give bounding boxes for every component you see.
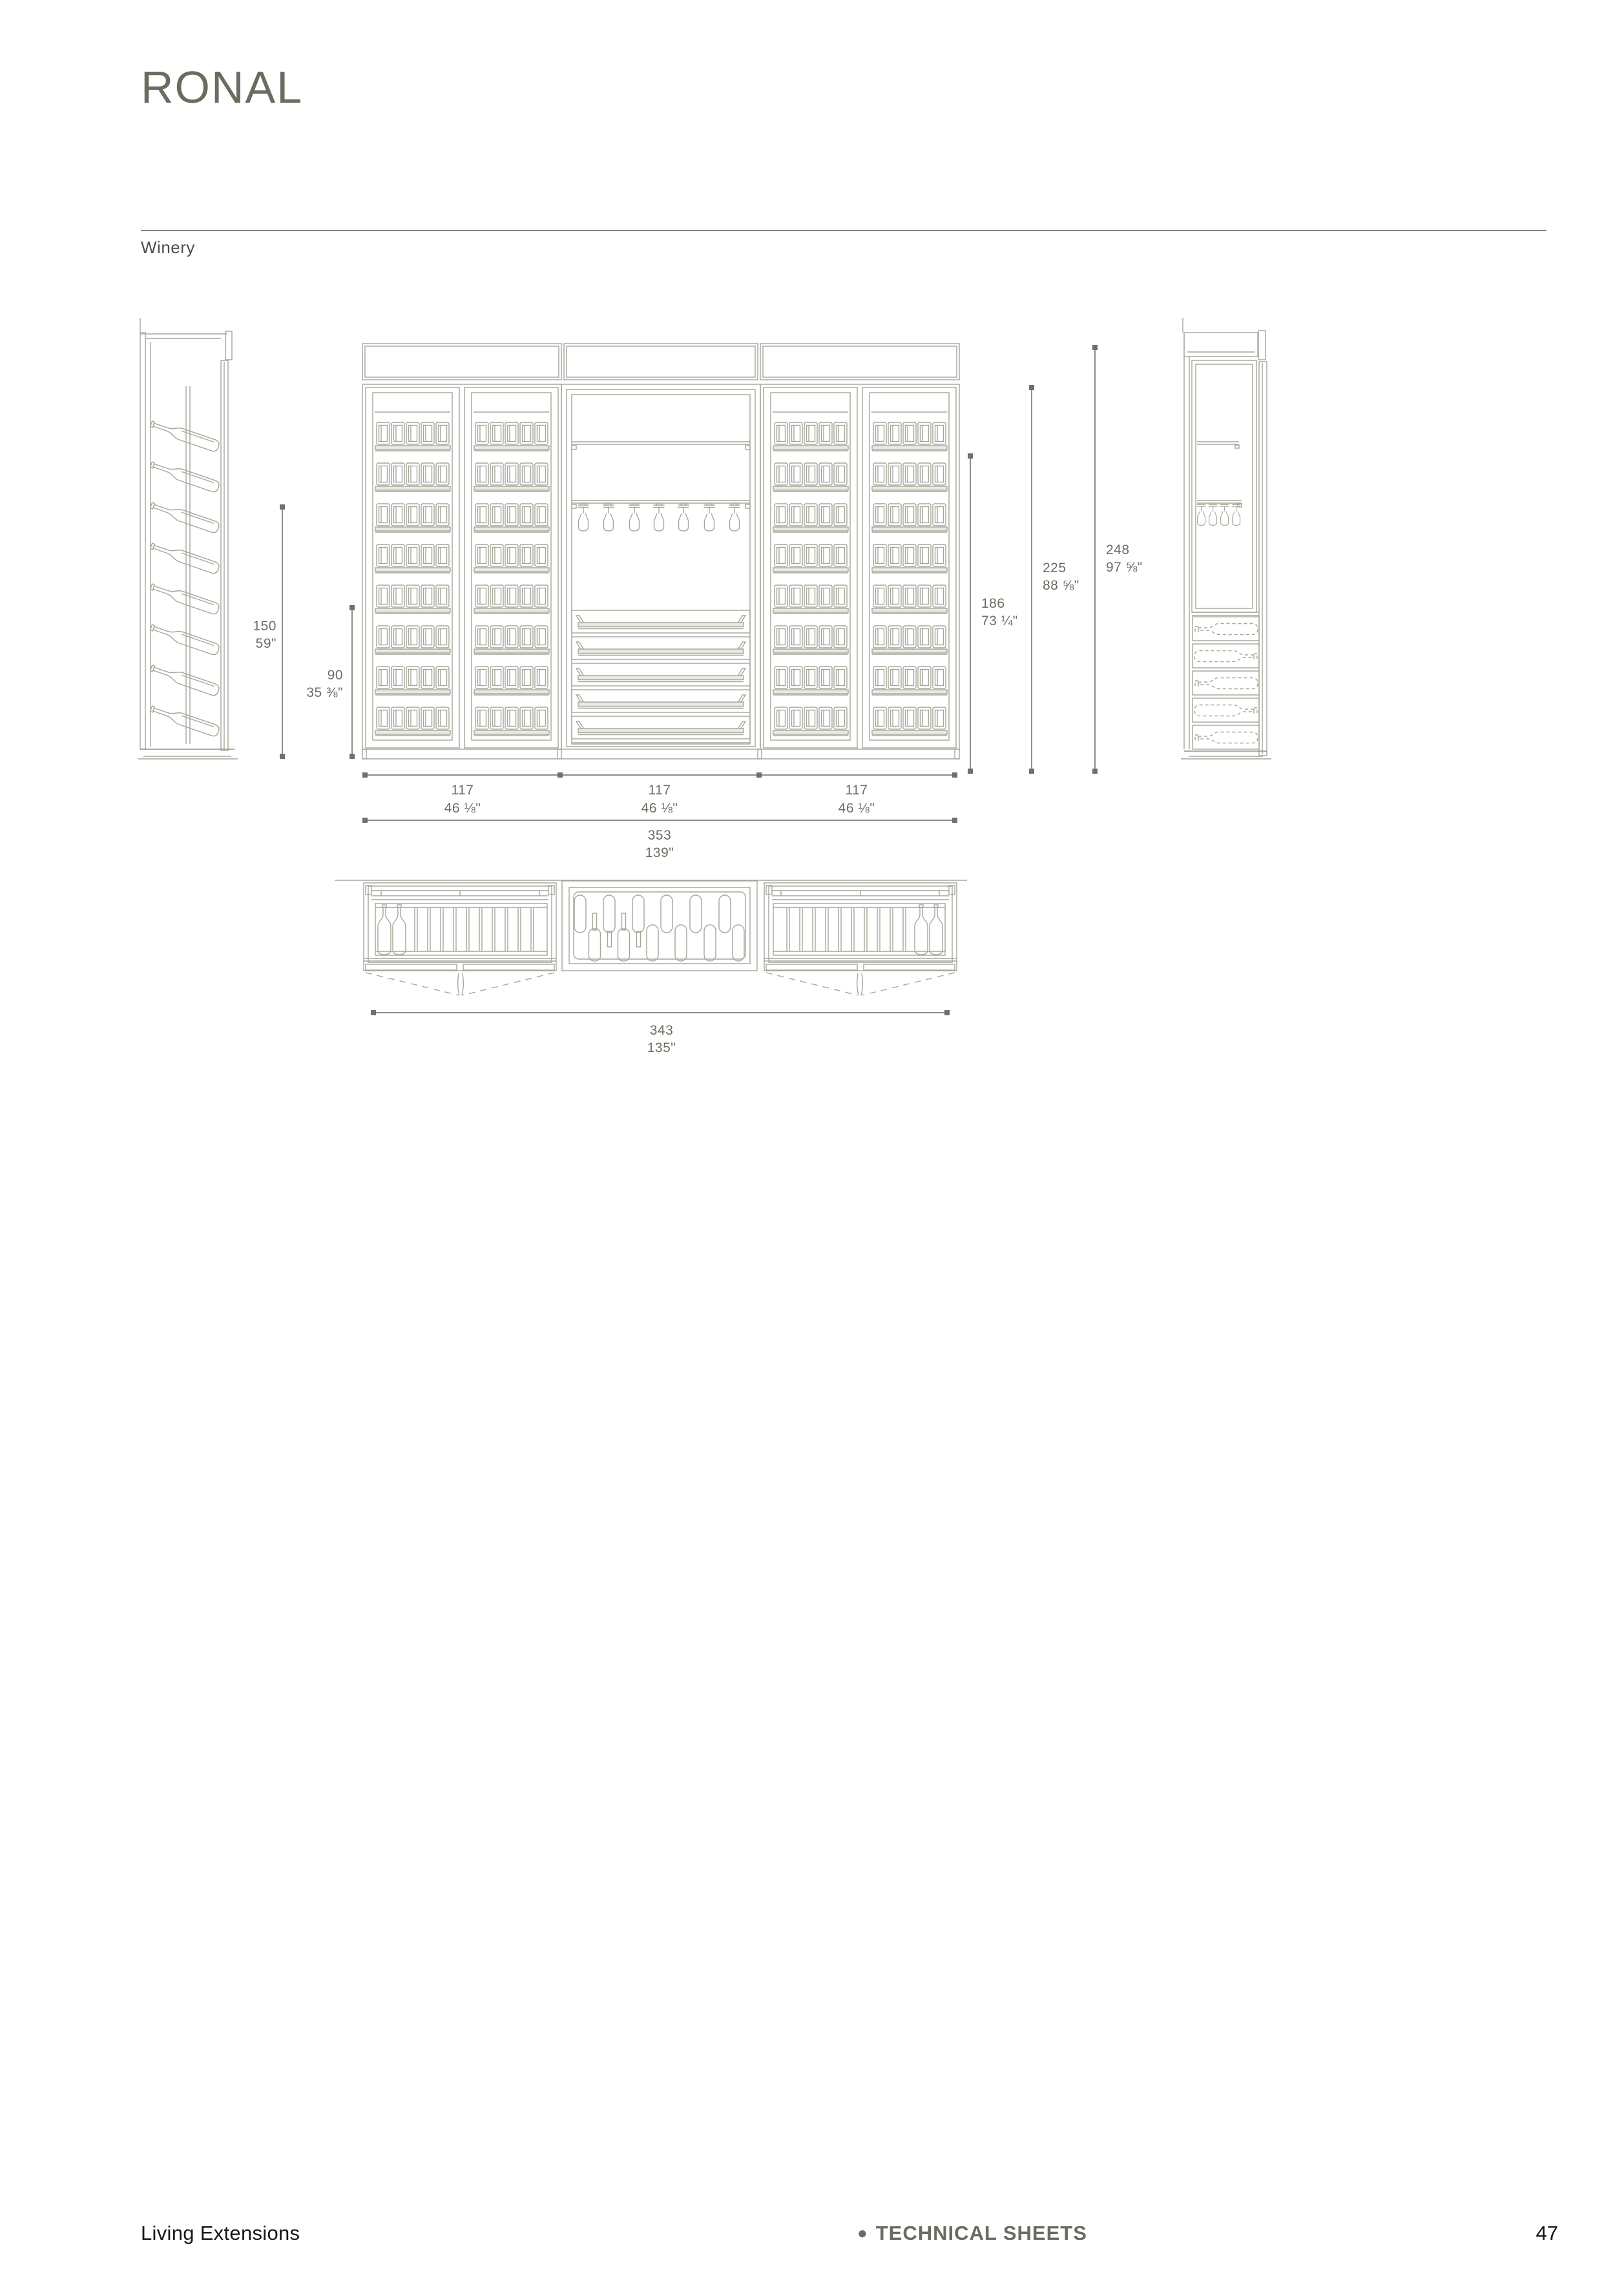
technical-sheets-bullet-icon: ● — [857, 2223, 868, 2242]
footer-collection-label: Living Extensions — [141, 2222, 300, 2245]
page-number: 47 — [1486, 2222, 1558, 2245]
glass-door-column — [764, 388, 857, 748]
bottle-drawer-stack — [1193, 617, 1259, 749]
footer-section-label: ●TECHNICAL SHEETS — [857, 2222, 1087, 2245]
dim-label-cm: 353 — [648, 828, 672, 843]
technical-drawing: 150 59" 90 35 ⅜" — [0, 0, 1615, 2296]
stemware-rail-side — [1197, 501, 1242, 525]
dim-total-width: 353 139" — [362, 818, 957, 860]
bottle-rack-side — [149, 419, 220, 738]
dim-label-in: 46 ⅛" — [839, 801, 875, 816]
plan-rack-section — [364, 883, 556, 995]
glass-door-column — [862, 388, 956, 748]
side-view-left — [138, 318, 238, 759]
tray-stack — [572, 610, 750, 739]
plan-view — [335, 880, 967, 995]
dim-label-cm: 150 — [253, 619, 276, 634]
dim-total-height: 248 97 ⅝" — [1092, 345, 1143, 774]
dim-label-cm: 186 — [981, 596, 1005, 611]
dim-cabinet-height: 225 88 ⅝" — [1029, 385, 1079, 774]
interior-shelf — [1197, 442, 1239, 448]
dim-module-widths: 117 46 ⅛" 117 46 ⅛" 117 46 ⅛" — [362, 772, 957, 816]
dim-label-in: 35 ⅜" — [306, 685, 343, 700]
dim-label-cm: 225 — [1043, 561, 1067, 575]
dim-label-in: 46 ⅛" — [641, 801, 678, 816]
dim-base-height: 90 35 ⅜" — [306, 605, 355, 759]
dim-label-cm: 117 — [649, 783, 671, 798]
dim-label-in: 97 ⅝" — [1106, 560, 1143, 575]
front-elevation — [362, 344, 959, 759]
dim-label-in: 139" — [645, 845, 674, 860]
dim-label-cm: 90 — [328, 668, 343, 683]
plan-drawer-section — [562, 881, 757, 971]
dim-door-height: 186 73 ¼" — [968, 453, 1018, 774]
dim-plan-width: 343 135" — [371, 1010, 950, 1055]
center-open-section — [567, 389, 755, 747]
dim-label-in: 59" — [256, 636, 276, 651]
dim-label-cm: 248 — [1106, 543, 1130, 557]
dim-label-in: 88 ⅝" — [1043, 578, 1079, 593]
dim-side-height: 150 59" — [253, 504, 285, 759]
dim-label-cm: 343 — [650, 1023, 674, 1038]
glass-door-column — [366, 388, 459, 748]
glass-door-column — [464, 388, 558, 748]
dim-label-cm: 117 — [452, 783, 474, 798]
footer-section-text: TECHNICAL SHEETS — [876, 2222, 1087, 2244]
dim-label-cm: 117 — [846, 783, 868, 798]
dim-label-in: 46 ⅛" — [444, 801, 481, 816]
side-view-right — [1181, 318, 1271, 759]
dim-label-in: 135" — [647, 1040, 676, 1055]
stemware-rail — [578, 503, 740, 531]
technical-sheet-page: RONAL Winery — [0, 0, 1615, 2296]
dim-label-in: 73 ¼" — [981, 614, 1018, 628]
